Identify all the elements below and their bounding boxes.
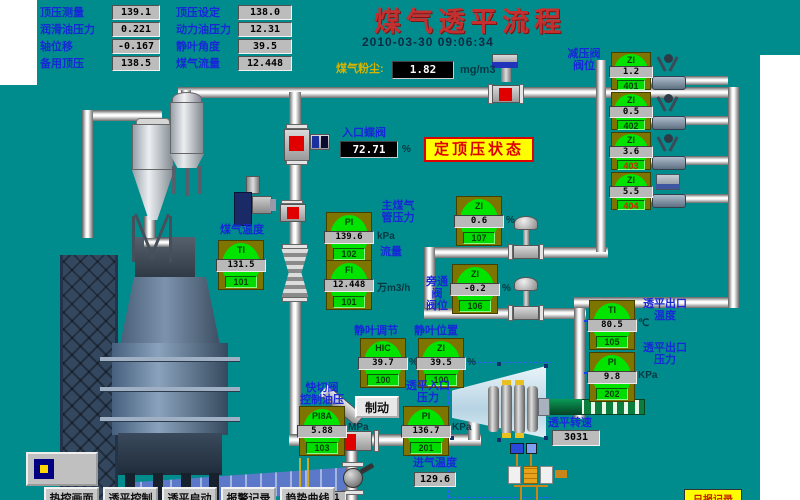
main-press-unit: kPa (377, 231, 395, 242)
zi-107-unit: % (506, 215, 515, 226)
dust-label: 煤气粉尘: (336, 63, 384, 75)
instrument-outlet-press[interactable]: PI 9.8 202 (589, 352, 635, 402)
reducer-group-label-line1: 减压阀 (568, 48, 601, 60)
panel-label: 轴位移 (40, 41, 73, 53)
panel-label: 顶压设定 (176, 7, 220, 19)
pipe-left-header (596, 60, 606, 252)
vane-ctrl-label: 静叶调节 (354, 325, 398, 337)
instrument-value: 5.5 (609, 186, 653, 198)
center-pipe-valve[interactable] (280, 200, 308, 226)
expansion-joint (279, 244, 311, 302)
pipe-right-header (728, 87, 739, 308)
rotor-disc (527, 386, 538, 432)
furnace-upper (120, 277, 220, 345)
panel-value: 12.448 (238, 56, 292, 71)
inlet-press-label: 透平入口 压力 (400, 380, 456, 404)
reducer-valve-1[interactable] (652, 54, 686, 90)
inlet-press-label-line2: 压力 (417, 392, 439, 404)
panel-value: -0.167 (112, 39, 160, 54)
handle (544, 436, 548, 440)
quick-oil-label: 快切阀 控制油压 (293, 382, 351, 406)
furnace-hearth (118, 433, 222, 475)
instrument-flow[interactable]: FI 12.448 101 (326, 260, 372, 310)
instrument-bypass[interactable]: ZI -0.2 106 (452, 264, 498, 314)
inlet-press-unit: KPa (452, 422, 471, 433)
datetime: 2010-03-30 09:06:34 (362, 35, 494, 49)
oil-box (508, 466, 521, 484)
instrument-zi-403[interactable]: ZI 3.6 403 (611, 132, 651, 170)
panel-label: 备用顶压 (40, 58, 84, 70)
gas-temp-label: 煤气温度 (216, 224, 268, 236)
bypass-motor-valve-b[interactable] (506, 277, 546, 321)
instrument-value: 136.7 (401, 425, 451, 438)
gravity-dust-catcher (168, 92, 206, 196)
speed-value: 3031 (552, 430, 600, 446)
instrument-value: 3.6 (609, 146, 653, 158)
inlet-press-label-line1: 透平入口 (406, 380, 450, 392)
instrument-value: 39.7 (358, 357, 408, 370)
oil-box-blue (510, 443, 524, 454)
outlet-temp-label-line1: 透平出口 (643, 298, 687, 310)
instrument-value: 1.2 (609, 66, 653, 78)
panel-label: 动力油压力 (176, 24, 231, 36)
oil-cooler (523, 466, 538, 484)
instrument-id: 402 (617, 120, 645, 130)
rotor-disc (488, 386, 499, 432)
instrument-inlet-press[interactable]: PI 136.7 201 (403, 406, 449, 456)
nav-button-3[interactable]: 透平启动 (162, 487, 217, 500)
pump-unit (230, 176, 276, 228)
instrument-value: 9.8 (587, 371, 637, 384)
oil-box-blue (526, 443, 537, 454)
outlet-press-label-line1: 透平出口 (643, 342, 687, 354)
vane-pos-label: 静叶位置 (414, 325, 458, 337)
instrument-main-press[interactable]: PI 139.6 102 (326, 212, 372, 262)
hmi-screen: 顶压测量 139.1 润滑油压力 0.221 轴位移 -0.167 备用顶压 1… (0, 0, 800, 500)
bypass-unit: % (502, 283, 511, 294)
desktop-margin-topleft (0, 0, 37, 85)
instrument-value: 139.6 (324, 231, 374, 244)
status-banner: 定顶压状态 (424, 137, 534, 162)
instrument-id: 101 (225, 276, 257, 288)
instrument-value: 12.448 (324, 279, 374, 292)
handle (497, 438, 501, 442)
instrument-id: 201 (410, 442, 442, 454)
quick-oil-label-line1: 快切阀 (306, 382, 339, 394)
desktop-margin-right (760, 55, 800, 500)
instrument-id: 105 (596, 336, 628, 348)
main-press-label-line2: 管压力 (382, 212, 415, 224)
instrument-value: -0.2 (450, 283, 500, 296)
instrument-gas-temp[interactable]: TI 131.5 101 (218, 240, 264, 290)
intake-temp-value: 129.6 (414, 472, 456, 487)
reducer-valve-2[interactable] (652, 94, 686, 130)
instrument-value: 80.5 (587, 319, 637, 332)
outlet-temp-label: 透平出口 温度 (637, 298, 693, 322)
instrument-id: 107 (463, 232, 495, 244)
instrument-id: 102 (333, 248, 365, 260)
main-press-label-line1: 主煤气 (382, 200, 415, 212)
instrument-zi-107[interactable]: ZI 0.6 107 (456, 196, 502, 246)
shaft-hub (538, 398, 550, 416)
quick-oil-unit: MPa (348, 422, 369, 433)
brake-button[interactable]: 制动 (355, 396, 399, 418)
speed-label: 透平转速 (548, 417, 592, 429)
instrument-zi-402[interactable]: ZI 0.5 402 (611, 92, 651, 130)
reducer-group-label-line2: 阀位 (573, 60, 595, 72)
handle (497, 362, 501, 366)
vane-pos-unit: % (467, 357, 476, 368)
rotor-seal (515, 380, 524, 385)
instrument-id: 103 (306, 442, 338, 454)
instrument-id: 100 (367, 374, 399, 386)
panel-value: 138.0 (238, 5, 292, 20)
reducer-valve-3[interactable] (652, 134, 686, 170)
oil-box (540, 466, 553, 484)
outlet-temp-label-line2: 温度 (654, 310, 676, 322)
instrument-id: 101 (333, 296, 365, 308)
inlet-butterfly-valve[interactable] (276, 122, 336, 166)
instrument-quick-oil[interactable]: PI8A 5.88 103 (299, 406, 345, 456)
rotor-seal (515, 433, 524, 438)
quick-oil-label-line2: 控制油压 (300, 394, 344, 406)
panel-label: 煤气流量 (176, 58, 220, 70)
panel-value: 12.31 (238, 22, 292, 37)
instrument-zi-401[interactable]: ZI 1.2 401 (611, 52, 651, 90)
instrument-id: 404 (617, 200, 645, 210)
rotor-seal (502, 380, 511, 385)
oil-stub (555, 470, 567, 478)
nav-button-5[interactable]: 趋势曲线 (280, 487, 335, 500)
outlet-press-unit: KPa (638, 370, 657, 381)
panel-value: 0.221 (112, 22, 160, 37)
instrument-value: 0.5 (609, 106, 653, 118)
platform (100, 357, 240, 362)
rotor-disc (501, 384, 512, 434)
turbine-shaft-coupling (550, 399, 582, 415)
platform (100, 417, 240, 422)
panel-value: 39.5 (238, 39, 292, 54)
panel-label: 静叶角度 (176, 41, 220, 53)
handle (544, 364, 548, 368)
instrument-outlet-temp[interactable]: TI 80.5 105 (589, 300, 635, 350)
bypass-label: 旁通阀 阀位 (422, 276, 452, 312)
minimized-window[interactable] (26, 452, 98, 486)
page-title: 煤气透平流程 (338, 0, 602, 39)
nav-button-4[interactable]: 报警记录 (221, 487, 276, 500)
instrument-id: 106 (459, 300, 491, 312)
dust-value: 1.82 (392, 61, 454, 79)
outlet-press-label: 透平出口 压力 (637, 342, 693, 366)
nav-button-2[interactable]: 透平控制 (103, 487, 158, 500)
panel-label: 顶压测量 (40, 7, 84, 19)
main-press-label: 主煤气 管压力 (374, 200, 422, 224)
bypass-label-line1: 旁通阀 (426, 276, 448, 300)
flow-unit: 万m3/h (377, 279, 410, 294)
instrument-id: 401 (617, 80, 645, 90)
panel-label: 润滑油压力 (40, 24, 95, 36)
instrument-value: 0.6 (454, 215, 504, 228)
reducer-valve-4[interactable] (652, 174, 688, 210)
inlet-valve-value: 72.71 (340, 141, 398, 158)
bypass-label-line2: 阀位 (426, 300, 448, 312)
instrument-value: 39.5 (416, 357, 466, 370)
rotor-disc (514, 384, 525, 434)
report-button[interactable]: 日报记录 (684, 489, 742, 500)
dust-unit: mg/m3 (460, 64, 495, 76)
intake-temp-label: 进气温度 (413, 457, 457, 469)
outlet-press-label-line2: 压力 (654, 354, 676, 366)
inlet-valve-unit: % (402, 144, 411, 155)
instrument-id: 403 (617, 160, 645, 170)
instrument-zi-404[interactable]: ZI 5.5 404 (611, 172, 651, 210)
rotor-seal (502, 433, 511, 438)
instrument-value: 131.5 (216, 259, 266, 272)
panel-value: 138.5 (112, 56, 160, 71)
instrument-value: 5.88 (297, 425, 347, 438)
instrument-id: 202 (596, 388, 628, 400)
main-line-motor-valve[interactable] (488, 54, 524, 106)
nav-button-1[interactable]: 热控画面 (44, 487, 99, 500)
platform (100, 387, 240, 392)
pipe-downcomer (82, 110, 93, 238)
panel-value: 139.1 (112, 5, 160, 20)
window-icon-glyph (40, 465, 48, 473)
flow-label: 流量 (380, 246, 402, 258)
valve-body-indicator (499, 88, 512, 101)
reducer-group-label: 减压阀 阀位 (560, 48, 608, 72)
inlet-valve-label: 入口蝶阀 (342, 127, 386, 139)
